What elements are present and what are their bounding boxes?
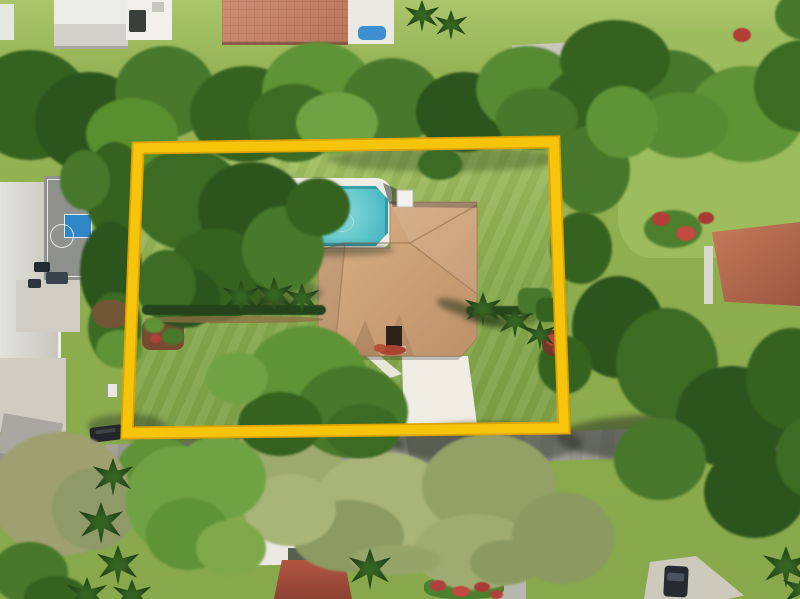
lot-boundary-line-edge [127, 142, 564, 433]
aerial-photo-stage [0, 0, 800, 599]
lot-boundary-overlay [0, 0, 800, 599]
lot-boundary-line [127, 142, 564, 433]
